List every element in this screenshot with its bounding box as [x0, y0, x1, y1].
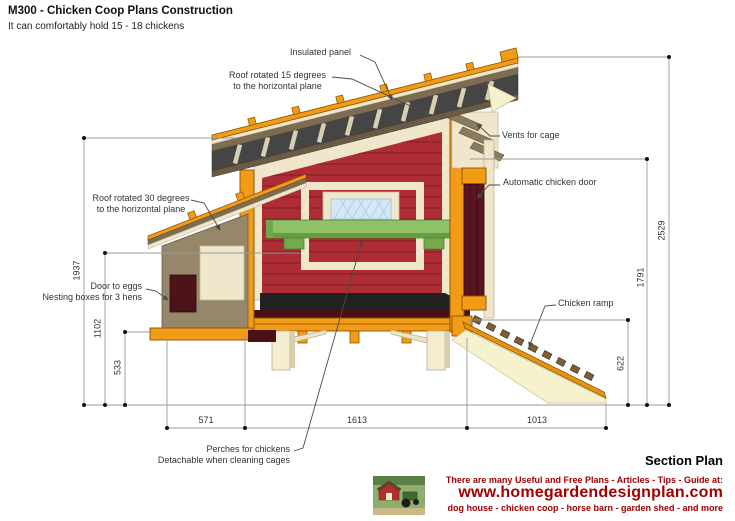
- page-title: M300 - Chicken Coop Plans Construction: [8, 5, 233, 17]
- dim-right-total: 2529: [656, 209, 667, 253]
- label-door-to-eggs: Door to eggs: [52, 281, 142, 292]
- dim-right-mid: 1791: [635, 256, 646, 300]
- vents-for-cage: [448, 112, 504, 168]
- coop-section-drawing: [0, 0, 735, 521]
- section-plan-title: Section Plan: [523, 453, 723, 468]
- chicken-ramp: [452, 316, 606, 403]
- dim-left-lower: 533: [112, 346, 123, 390]
- label-roof-15-degrees: Roof rotated 15 degrees to the horizonta…: [225, 70, 330, 91]
- label-automatic-chicken-door: Automatic chicken door: [503, 177, 597, 188]
- dim-bottom-right: 1013: [507, 415, 567, 425]
- footer-promo-line2: dog house - chicken coop - horse barn - …: [383, 503, 723, 513]
- label-chicken-ramp: Chicken ramp: [558, 298, 614, 309]
- page-subtitle: It can comfortably hold 15 - 18 chickens: [8, 21, 184, 32]
- dim-bottom-left: 571: [176, 415, 236, 425]
- label-nesting-boxes: Nesting boxes for 3 hens: [32, 292, 142, 303]
- label-roof-30-degrees: Roof rotated 30 degrees to the horizonta…: [92, 193, 190, 214]
- section-plan-page: M300 - Chicken Coop Plans Construction I…: [0, 0, 735, 521]
- dim-bottom-mid: 1613: [327, 415, 387, 425]
- footer-website-link[interactable]: www.homegardendesignplan.com: [403, 484, 723, 502]
- label-perches: Perches for chickens Detachable when cle…: [118, 444, 290, 465]
- dim-left-total: 1937: [71, 249, 82, 293]
- coop-legs: [272, 330, 450, 370]
- label-vents-for-cage: Vents for cage: [502, 130, 560, 141]
- dim-left-mid: 1102: [92, 307, 103, 351]
- dim-right-lower: 622: [615, 342, 626, 386]
- label-insulated-panel: Insulated panel: [290, 47, 351, 58]
